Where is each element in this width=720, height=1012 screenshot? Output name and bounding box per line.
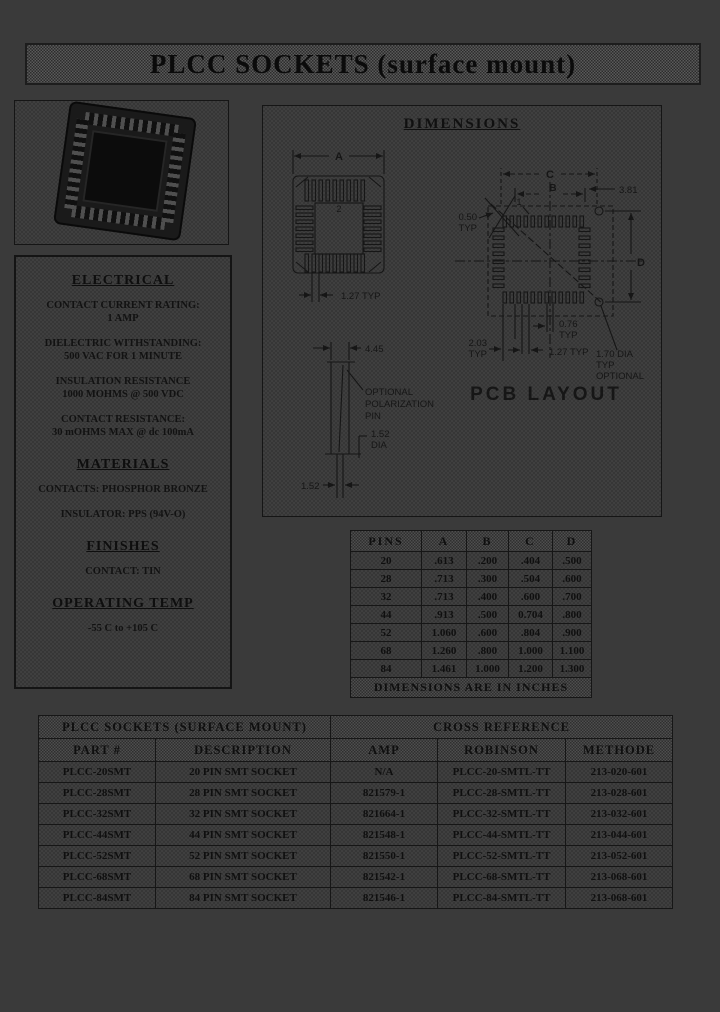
spec-line: 1000 MOHMS @ 500 VDC [16, 388, 230, 401]
col-header: B [467, 531, 509, 552]
cell: .500 [553, 552, 592, 570]
cell: 68 [351, 642, 422, 660]
dim-c-label: C [546, 169, 554, 181]
cell: 20 PIN SMT SOCKET [156, 762, 331, 783]
cell: 821550-1 [331, 846, 438, 867]
cell: 32 PIN SMT SOCKET [156, 804, 331, 825]
cell: .404 [509, 552, 553, 570]
title-banner: PLCC SOCKETS (surface mount) [25, 43, 701, 85]
pad-height-label-1: 0.76 [559, 319, 578, 330]
cell: .713 [422, 570, 467, 588]
product-photo-box [14, 100, 229, 245]
pcb-pitch-label: 1.27 TYP [549, 347, 588, 358]
cell: 28 [351, 570, 422, 588]
table-row: 841.4611.0001.2001.300 [351, 660, 592, 678]
polarization-note-2: POLARIZATION [365, 399, 434, 410]
pad-height-label-2: TYP [559, 330, 577, 341]
cell: PLCC-52SMT [39, 846, 156, 867]
cell: .713 [422, 588, 467, 606]
cell: .913 [422, 606, 467, 624]
cell: 84 [351, 660, 422, 678]
cell: 28 PIN SMT SOCKET [156, 783, 331, 804]
table-row: PLCC-32SMT32 PIN SMT SOCKET821664-1PLCC-… [39, 804, 673, 825]
cell: PLCC-52-SMTL-TT [438, 846, 566, 867]
spec-line: CONTACTS: PHOSPHOR BRONZE [16, 483, 230, 496]
cell: 52 PIN SMT SOCKET [156, 846, 331, 867]
cell: .800 [467, 642, 509, 660]
pin-width-label: 1.52 [301, 481, 320, 492]
spec-section-materials: MATERIALS CONTACTS: PHOSPHOR BRONZE INSU… [16, 457, 230, 521]
row-pitch-label-1: 2.03 [469, 338, 488, 349]
cell: .900 [553, 624, 592, 642]
group-header-plcc: PLCC SOCKETS (SURFACE MOUNT) [39, 716, 331, 739]
cell: 213-068-601 [566, 888, 673, 909]
col-header-methode: METHODE [566, 739, 673, 762]
table-row: 44.913.5000.704.800 [351, 606, 592, 624]
spec-line: CONTACT: TIN [16, 565, 230, 578]
cell: .500 [467, 606, 509, 624]
polarization-note-3: PIN [365, 411, 381, 422]
dim-a-label: A [335, 151, 343, 163]
cell: .600 [467, 624, 509, 642]
cell: .600 [553, 570, 592, 588]
spec-line: INSULATOR: PPS (94V-O) [16, 508, 230, 521]
cell: .504 [509, 570, 553, 588]
spec-line: DIELECTRIC WITHSTANDING: [16, 337, 230, 350]
page-title: PLCC SOCKETS (surface mount) [150, 49, 576, 80]
materials-heading: MATERIALS [16, 457, 230, 473]
datasheet-page: { "page": { "title": "PLCC SOCKETS (surf… [0, 0, 720, 1012]
col-header: C [509, 531, 553, 552]
cell: PLCC-20SMT [39, 762, 156, 783]
col-header-robinson: ROBINSON [438, 739, 566, 762]
spec-line: 500 VAC FOR 1 MINUTE [16, 350, 230, 363]
table-row: 28.713.300.504.600 [351, 570, 592, 588]
table-header-row: PINS A B C D [351, 531, 592, 552]
column-header-row: PART # DESCRIPTION AMP ROBINSON METHODE [39, 739, 673, 762]
socket-top-view [293, 150, 384, 302]
pin2-label: 2 [336, 204, 341, 214]
pcb-layout-drawing [455, 168, 645, 361]
row-pitch-label-2: TYP [469, 349, 487, 360]
cell: PLCC-32-SMTL-TT [438, 804, 566, 825]
cell: PLCC-44-SMTL-TT [438, 825, 566, 846]
cell: 44 PIN SMT SOCKET [156, 825, 331, 846]
cell: 1.060 [422, 624, 467, 642]
cell: 821664-1 [331, 804, 438, 825]
operating-temp-heading: OPERATING TEMP [16, 596, 230, 612]
cell: PLCC-84-SMTL-TT [438, 888, 566, 909]
cell: PLCC-28-SMTL-TT [438, 783, 566, 804]
plcc-socket-photo [53, 101, 197, 242]
table-row: 681.260.8001.0001.100 [351, 642, 592, 660]
table-row: PLCC-20SMT20 PIN SMT SOCKETN/APLCC-20-SM… [39, 762, 673, 783]
cell: 84 PIN SMT SOCKET [156, 888, 331, 909]
cell: 213-052-601 [566, 846, 673, 867]
group-header-crossref: CROSS REFERENCE [331, 716, 673, 739]
cell: PLCC-20-SMTL-TT [438, 762, 566, 783]
cell: 213-032-601 [566, 804, 673, 825]
cell: .613 [422, 552, 467, 570]
spec-line: CONTACT CURRENT RATING: [16, 299, 230, 312]
cell: 1.461 [422, 660, 467, 678]
cell: PLCC-32SMT [39, 804, 156, 825]
hole-label-1: 1.70 DIA [596, 349, 634, 360]
cell: .200 [467, 552, 509, 570]
table-row: 20.613.200.404.500 [351, 552, 592, 570]
cell: 213-044-601 [566, 825, 673, 846]
spec-line: -55 C to +105 C [16, 622, 230, 635]
cell: 821548-1 [331, 825, 438, 846]
cell: PLCC-84SMT [39, 888, 156, 909]
cell: .300 [467, 570, 509, 588]
cell: .700 [553, 588, 592, 606]
col-header-part: PART # [39, 739, 156, 762]
cell: 1.100 [553, 642, 592, 660]
pin-dia-label-2: DIA [371, 440, 388, 451]
spec-line: CONTACT RESISTANCE: [16, 413, 230, 426]
spec-line: 1 AMP [16, 312, 230, 325]
finishes-heading: FINISHES [16, 539, 230, 555]
pins-dimensions-table: PINS A B C D 20.613.200.404.500 28.713.3… [350, 530, 592, 698]
pin-dia-label-1: 1.52 [371, 429, 390, 440]
dims-units-note: DIMENSIONS ARE IN INCHES [351, 678, 592, 698]
cell: 821546-1 [331, 888, 438, 909]
cell: .400 [467, 588, 509, 606]
pitch-label: 1.27 TYP [341, 291, 380, 302]
col-header-amp: AMP [331, 739, 438, 762]
spec-section-electrical: ELECTRICAL CONTACT CURRENT RATING: 1 AMP… [16, 273, 230, 439]
spec-section-finishes: FINISHES CONTACT: TIN [16, 539, 230, 578]
cell: 0.704 [509, 606, 553, 624]
side-height-label: 4.45 [365, 344, 384, 355]
table-footer-row: DIMENSIONS ARE IN INCHES [351, 678, 592, 698]
polarization-note-1: OPTIONAL [365, 387, 413, 398]
hole-label-3: OPTIONAL [596, 371, 644, 382]
dim-d-label: D [637, 257, 645, 269]
cell: PLCC-44SMT [39, 825, 156, 846]
col-header-description: DESCRIPTION [156, 739, 331, 762]
cell: .800 [553, 606, 592, 624]
table-row: PLCC-28SMT28 PIN SMT SOCKET821579-1PLCC-… [39, 783, 673, 804]
table-row: PLCC-52SMT52 PIN SMT SOCKET821550-1PLCC-… [39, 846, 673, 867]
cell: .600 [509, 588, 553, 606]
table-row: PLCC-84SMT84 PIN SMT SOCKET821546-1PLCC-… [39, 888, 673, 909]
cell: N/A [331, 762, 438, 783]
cell: 213-068-601 [566, 867, 673, 888]
cell: 44 [351, 606, 422, 624]
cell: PLCC-68SMT [39, 867, 156, 888]
cell: 213-020-601 [566, 762, 673, 783]
spec-line: INSULATION RESISTANCE [16, 375, 230, 388]
electrical-heading: ELECTRICAL [16, 273, 230, 289]
spec-panel: ELECTRICAL CONTACT CURRENT RATING: 1 AMP… [14, 255, 232, 689]
group-header-row: PLCC SOCKETS (SURFACE MOUNT) CROSS REFER… [39, 716, 673, 739]
cell: 1.300 [553, 660, 592, 678]
col-header: D [553, 531, 592, 552]
col-header: A [422, 531, 467, 552]
cell: 1.200 [509, 660, 553, 678]
dimensions-diagram: A 2 1.27 TYP 4.45 OPTIONAL POLARIZATION … [263, 106, 661, 516]
cell: 821579-1 [331, 783, 438, 804]
table-row: 521.060.600.804.900 [351, 624, 592, 642]
cell: 20 [351, 552, 422, 570]
cell: 1.000 [509, 642, 553, 660]
cell: 1.260 [422, 642, 467, 660]
spec-section-operating-temp: OPERATING TEMP -55 C to +105 C [16, 596, 230, 635]
socket-side-view [313, 342, 367, 498]
parts-cross-reference-table: PLCC SOCKETS (SURFACE MOUNT) CROSS REFER… [38, 715, 673, 909]
cell: PLCC-28SMT [39, 783, 156, 804]
table-row: PLCC-44SMT44 PIN SMT SOCKET821548-1PLCC-… [39, 825, 673, 846]
cell: PLCC-68-SMTL-TT [438, 867, 566, 888]
pad-width-label-2: TYP [459, 223, 477, 234]
table-row: 32.713.400.600.700 [351, 588, 592, 606]
hole-label-2: TYP [596, 360, 614, 371]
socket-cavity [82, 130, 167, 212]
cell: 32 [351, 588, 422, 606]
table-row: PLCC-68SMT68 PIN SMT SOCKET821542-1PLCC-… [39, 867, 673, 888]
cell: .804 [509, 624, 553, 642]
dimensions-panel: DIMENSIONS A 2 1.27 TYP [262, 105, 662, 517]
cell: 213-028-601 [566, 783, 673, 804]
cell: 821542-1 [331, 867, 438, 888]
cell: 52 [351, 624, 422, 642]
cell: 1.000 [467, 660, 509, 678]
pcb-layout-caption: PCB LAYOUT [470, 384, 622, 405]
spec-line: 30 mOHMS MAX @ dc 100mA [16, 426, 230, 439]
col-header: PINS [351, 531, 422, 552]
pad-width-label-1: 0.50 [459, 212, 478, 223]
offset-label: 3.81 [619, 185, 638, 196]
dim-b-label: B [549, 183, 556, 194]
cell: 68 PIN SMT SOCKET [156, 867, 331, 888]
pin1-label: 1 [516, 197, 521, 207]
